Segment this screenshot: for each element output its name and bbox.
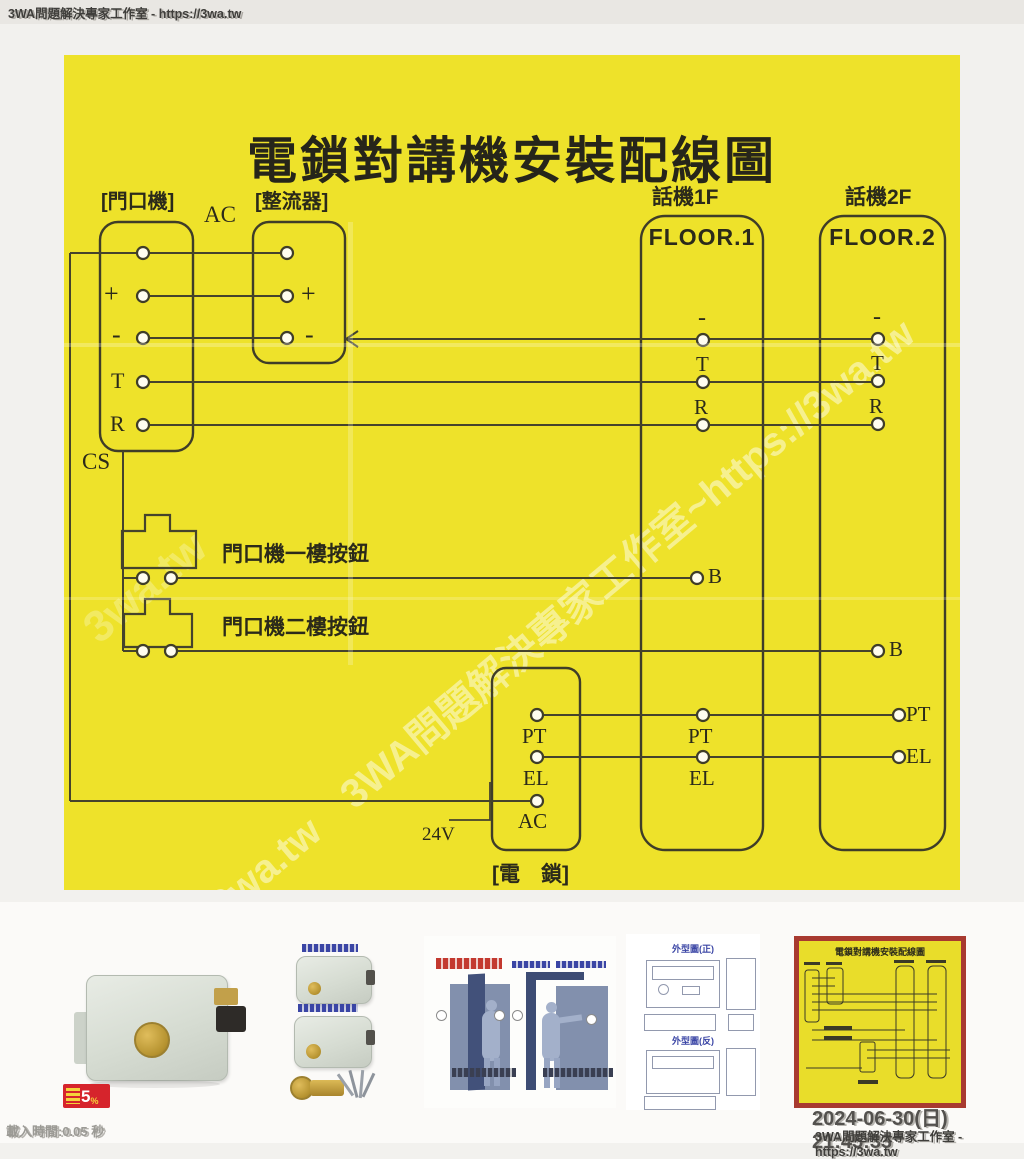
front-view-arrow-mark xyxy=(682,986,700,995)
floor2-name: FLOOR.2 xyxy=(820,224,945,251)
mini-diagram-title: 電鎖對講機安裝配線圖 xyxy=(799,945,961,958)
thumbnail-wiring-diagram-selected[interactable]: 電鎖對講機安裝配線圖 xyxy=(794,936,966,1108)
lock-ac-label: AC xyxy=(518,809,547,834)
door-marker-4 xyxy=(586,1014,597,1025)
thumbnail-door-diagram[interactable] xyxy=(424,936,616,1108)
back-bottom-view-drawing xyxy=(644,1096,716,1110)
badge-small-text xyxy=(66,1088,80,1104)
lock-cylinder xyxy=(134,1022,170,1058)
badge-number: 5 xyxy=(81,1088,90,1105)
wiring-diagram-panel: 3wa.tw 3WA問題解決專家工作室~https://3wa.tw 3wa.t… xyxy=(64,55,960,890)
door-marker-3 xyxy=(512,1010,523,1021)
mini-btn2-label xyxy=(824,1036,852,1040)
variant2-connector xyxy=(366,1030,375,1045)
lock-el-label: EL xyxy=(523,766,549,791)
f2-t-label: T xyxy=(871,351,884,376)
variant1-cylinder xyxy=(308,982,321,995)
door2-person-head xyxy=(546,1002,557,1013)
f1-t-label: T xyxy=(696,352,709,377)
back-side-view-drawing xyxy=(726,1048,756,1096)
diagram-title: 電鎖對講機安裝配線圖 xyxy=(64,121,960,193)
phone2f-label: 話機2F xyxy=(845,181,912,211)
phone1f-label: 話機1F xyxy=(652,181,719,211)
mini-lock-box xyxy=(860,1042,875,1072)
lock-connector xyxy=(216,1006,246,1032)
mini-label-1 xyxy=(804,962,820,965)
variant2-cylinder xyxy=(306,1044,321,1059)
diagonal-watermark-small: 3wa.tw xyxy=(74,522,217,653)
site-watermark-top: 3WA問題解決專家工作室 - https://3wa.tw xyxy=(8,3,241,22)
f1-minus-label: - xyxy=(698,305,706,332)
thumbnail-lock-photo[interactable] xyxy=(62,930,257,1110)
f2-r-label: R xyxy=(869,394,883,419)
ac-input-label: AC xyxy=(204,202,236,228)
f2-minus-label: - xyxy=(873,304,881,331)
back-view-detail-strip xyxy=(652,1056,714,1069)
variant1-connector xyxy=(366,970,375,985)
discount-badge: 5 % xyxy=(63,1084,110,1108)
front-view-cylinder-mark xyxy=(658,984,669,995)
key-cylinder-body xyxy=(310,1080,344,1096)
button1-label: 門口機一樓按鈕 xyxy=(222,538,369,568)
mini-label-2 xyxy=(826,962,842,965)
side-view-drawing xyxy=(726,958,756,1010)
door-station-label: [門口機] xyxy=(101,185,174,214)
diagonal-watermark: 3wa.tw 3WA問題解決專家工作室~https://3wa.tw xyxy=(194,303,925,890)
door-t-label: T xyxy=(111,368,124,394)
door2-lintel xyxy=(526,972,584,980)
f2-pt-label: PT xyxy=(906,702,931,727)
thumbnail-outline-drawings[interactable]: 外型圖(正) 外型圖(反) xyxy=(626,934,760,1110)
door-r-label: R xyxy=(110,411,125,437)
mini-floor1-box xyxy=(896,966,914,1078)
door-minus-label: - xyxy=(112,320,121,350)
rectifier-label: [整流器] xyxy=(255,185,328,214)
lock-brass-plate xyxy=(214,988,238,1005)
front-view-detail-strip xyxy=(652,966,714,980)
volt-24v-label: 24V xyxy=(422,824,455,846)
door-diagram-caption-3 xyxy=(556,961,606,968)
door-plus-label: + xyxy=(104,279,119,309)
mini-label-4 xyxy=(926,960,946,963)
door-marker-2 xyxy=(494,1010,505,1021)
variant1-caption xyxy=(302,944,358,952)
thumbnail-lock-variants[interactable] xyxy=(282,932,390,1112)
rect-plus-label: + xyxy=(301,279,316,309)
rect-minus-label: - xyxy=(305,320,314,350)
variant2-lock xyxy=(294,1016,372,1068)
cs-label: CS xyxy=(82,449,110,475)
key-4 xyxy=(362,1073,375,1098)
button2-label: 門口機二樓按鈕 xyxy=(222,611,369,641)
outline-front-label: 外型圖(正) xyxy=(626,942,760,955)
badge-percent: % xyxy=(90,1096,98,1106)
door-diagram-caption-2 xyxy=(512,961,550,968)
bracket-view-drawing xyxy=(728,1014,754,1031)
mini-btn1-label xyxy=(824,1026,852,1030)
mini-diagram-art xyxy=(800,958,960,1096)
door1-person-head xyxy=(486,1000,497,1011)
electric-lock-label: [電 鎖] xyxy=(492,858,569,888)
f2-el-label: EL xyxy=(906,744,932,769)
lock-pt-label: PT xyxy=(522,724,547,749)
bottom-view-drawing xyxy=(644,1014,716,1031)
door2-caption xyxy=(543,1068,613,1077)
door-marker-1 xyxy=(436,1010,447,1021)
mini-lock-label xyxy=(858,1080,878,1084)
variant2-caption xyxy=(298,1004,358,1012)
floor1-name: FLOOR.1 xyxy=(641,224,763,251)
f2-b-label: B xyxy=(889,637,903,662)
f1-el-label: EL xyxy=(689,766,715,791)
mini-label-3 xyxy=(894,960,914,963)
mini-floor2-box xyxy=(928,966,946,1078)
door1-caption xyxy=(452,1068,516,1077)
f1-b-label: B xyxy=(708,564,722,589)
f1-r-label: R xyxy=(694,395,708,420)
door-diagram-red-caption xyxy=(436,958,502,969)
load-time-text: 載入時間:0.05 秒 xyxy=(6,1121,104,1140)
variant1-lock xyxy=(296,956,372,1004)
f1-pt-label: PT xyxy=(688,724,713,749)
door2-jamb-left xyxy=(526,972,536,1090)
outline-back-label: 外型圖(反) xyxy=(626,1034,760,1047)
